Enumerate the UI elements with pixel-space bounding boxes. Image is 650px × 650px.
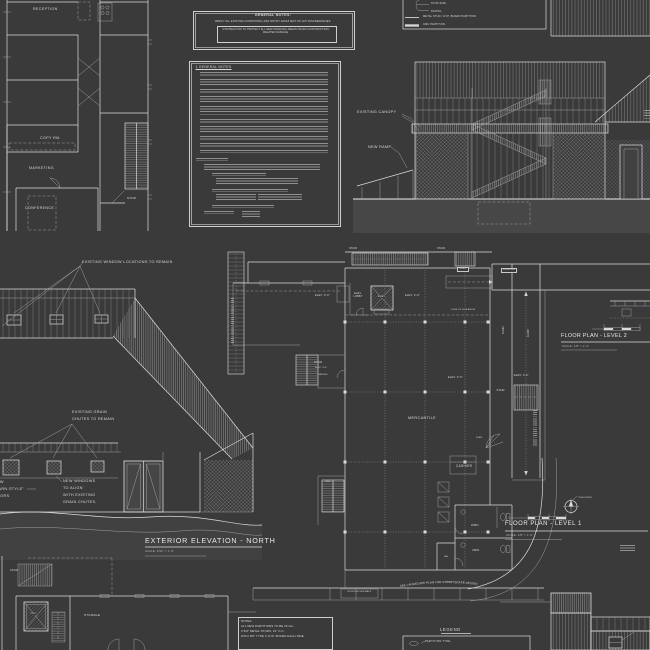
callout-new-ramp: NEW RAMP (368, 145, 391, 150)
plan-label-stair: STAIR (349, 247, 357, 250)
room-label-conference: CONFERENCE (25, 206, 54, 210)
legend-stud-size-label: STUD SIZE (431, 2, 446, 5)
callout-new-windows-line2: TO ALIGN (63, 486, 83, 491)
legend-title: LEGEND (440, 627, 461, 632)
plan-label-elev-lobby-line2: LOBBY (351, 295, 365, 298)
fine-print-lines (200, 106, 328, 116)
general-notes-title: GENERAL NOTES: (194, 13, 352, 17)
fine-print-lines (216, 194, 256, 202)
fine-print-lines (258, 178, 298, 186)
plan-label-ramp: RAMP (457, 267, 469, 272)
fine-print-lines (196, 158, 228, 161)
drawing-scale-level2: SCALE: 1/8" = 1'-0" (562, 345, 589, 348)
fine-print-lines (200, 72, 328, 76)
room-label-stair: STAIR (127, 197, 136, 200)
fine-print-lines (204, 164, 320, 170)
callout-barn-doors-line1: NEW (0, 480, 4, 485)
fine-print-lines (644, 110, 650, 120)
mercantile-floor-plan-drawing: RAMP RAMP SEE LANDSCAPE PLAN FOR STREETS… (228, 252, 650, 601)
fine-print-lines (200, 136, 328, 140)
callout-barn-doors-line3: DOORS (0, 494, 9, 499)
general-note-2: CONTRACTOR TO PROTECT ALL NEW WORKING AR… (221, 28, 331, 35)
building-section-drawing (353, 0, 650, 233)
fine-print-lines (200, 143, 328, 147)
fine-print-lines (216, 178, 258, 186)
landscape-note-curved-text: SEE LANDSCAPE PLAN FOR STREETSCAPE DESIG… (400, 580, 478, 588)
callout-barn-doors-line2: "BARN-STYLE" (0, 487, 24, 492)
plan-label-elevator: ELEV. (378, 295, 387, 298)
partition-notes-line2: 3 5/8" METAL STUDS, 16" O.C. (241, 630, 285, 633)
elevation-marker: ELEV: 3'-6" (448, 376, 463, 379)
fine-print-lines (200, 119, 328, 123)
plan-label-stair: STAIR (10, 569, 18, 572)
notes-sheet-heading: 1 GENERAL NOTES (196, 65, 232, 69)
sidewalk-label: EXISTING SIDEWALK (341, 591, 378, 594)
drawing-scale-level1: SCALE: 1/8" = 1'-0" (506, 534, 533, 537)
fine-print-lines (200, 79, 328, 86)
corner-elevation-drawing (500, 593, 650, 650)
fine-print-lines (212, 205, 274, 208)
partition-notes-line1: ALL NEW PARTITIONS TO BE 25 GA., (241, 625, 295, 628)
legend-bottom-drawing (403, 634, 530, 650)
room-label-jan: JAN. (444, 556, 449, 558)
fine-print-lines (204, 211, 234, 214)
room-label-cashier: CASHIER (456, 465, 472, 469)
callout-existing-windows: EXISTING WINDOW LOCATIONS TO REMAIN (82, 260, 173, 265)
drawing-title-level1: FLOOR PLAN - LEVEL 1 (505, 521, 582, 528)
callout-new-windows-line4: GRAIN CHUTES. (63, 500, 97, 505)
ramp-vertical-label: RAMP (526, 329, 530, 337)
fine-print-lines (258, 194, 302, 202)
barn-elevation-drawing (0, 262, 262, 560)
legend-partition-type-label: PARTITION TYPE (425, 640, 451, 643)
plan-label-elevator: ELEV. (30, 613, 37, 615)
room-label-men: MEN (473, 549, 480, 552)
elevation-marker: ELEV: 3'-6" (315, 367, 327, 370)
legend-rating-label: RATING (431, 10, 442, 13)
fine-print-lines (242, 211, 260, 219)
drawing-title-level2: FLOOR PLAN - LEVEL 2 (561, 333, 627, 339)
fine-print-lines (200, 96, 328, 103)
fine-print-lines (212, 173, 266, 176)
fine-print-lines (212, 189, 288, 192)
room-label-copy-rm: COPY RM. (40, 136, 61, 140)
fine-print-lines (200, 126, 328, 133)
callout-new-windows-line3: WITH EXISTING (63, 493, 95, 498)
drawing-scale-exterior-elevation: SCALE: 3/32" = 1'-0" (145, 550, 174, 553)
elevation-marker: ELEV: 3'-6" (405, 294, 420, 297)
room-label-mercantile: MERCANTILE (402, 416, 442, 421)
true-north-label: TRUE NORTH (578, 497, 592, 499)
fine-print-lines (200, 89, 328, 93)
room-label-marketing: MARKETING (29, 166, 54, 170)
callout-new-windows-line1: NEW WINDOWS (63, 479, 95, 484)
fine-print-lines (200, 150, 328, 153)
plan-label-landing: LANDING (501, 268, 517, 273)
elevation-marker: ELEV: 0'-0" (514, 374, 529, 377)
elevation-marker: ELEV: 0'-0" (315, 294, 330, 297)
callout-existing-canopy: EXISTING CANOPY (357, 110, 396, 115)
room-label-reception: RECEPTION (33, 7, 58, 11)
plan-note-edge-of-slab: EDGE OF SLAB ABOVE (451, 309, 476, 311)
plan-label-stair-small: STAIR (476, 437, 482, 439)
plan-label-landing-small: LANDING (318, 374, 328, 376)
drawing-title-exterior-elevation: EXTERIOR ELEVATION - NORTH (145, 537, 276, 546)
blueprint-sheet: RAMP RAMP SEE LANDSCAPE PLAN FOR STREETS… (0, 0, 650, 650)
room-label-wmn: WMN (471, 524, 479, 527)
general-note-1: VERIFY ALL EXISTING CONDITIONS, AND NOTI… (197, 20, 349, 23)
plan-label-stair-small: STAIR (325, 481, 331, 483)
legend-metal-stud-label: METAL STUD / GYP. BOARD PARTITION (423, 15, 476, 18)
legend-cmu-label: CMU PARTITION (423, 23, 445, 26)
vertical-fine-print (533, 410, 537, 446)
room-label-storage: STORAGE (84, 614, 100, 618)
partition-notes-line3: WITH 5/8" TYPE X GYP. BOARD EACH SIDE (241, 635, 304, 638)
plan-label-stair: STAIR (314, 361, 322, 364)
partition-notes-title: NOTES: (241, 620, 252, 623)
fine-print-lines (620, 545, 635, 551)
vertical-fine-print (231, 298, 235, 344)
storage-plan-drawing (2, 556, 256, 650)
plan-label-stair: STAIR (437, 247, 445, 250)
callout-grain-chutes-line2: CHUTES TO REMAIN (72, 417, 114, 422)
callout-grain-chutes-line1: EXISTING GRAIN (72, 410, 107, 415)
plan-label-stair: STAIR (497, 389, 505, 392)
svg-text:SEE LANDSCAPE PLAN FOR STREETS: SEE LANDSCAPE PLAN FOR STREETSCAPE DESIG… (400, 580, 478, 588)
ramp-vertical-label: RAMP (501, 326, 505, 334)
